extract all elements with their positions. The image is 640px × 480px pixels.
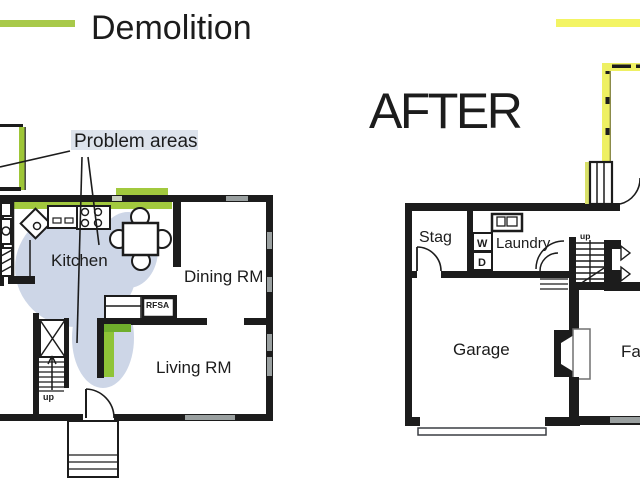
svg-text:Dining RM: Dining RM	[184, 267, 263, 286]
svg-text:Fa: Fa	[621, 342, 640, 361]
svg-text:AFTER: AFTER	[369, 83, 521, 139]
svg-text:D: D	[478, 257, 486, 269]
svg-text:Garage: Garage	[453, 340, 510, 359]
svg-text:RFSA: RFSA	[146, 300, 169, 310]
svg-text:Problem areas: Problem areas	[74, 131, 198, 152]
svg-text:up: up	[43, 392, 54, 402]
svg-text:Demolition: Demolition	[91, 9, 252, 47]
svg-text:Stag: Stag	[419, 229, 452, 246]
svg-text:Laundry: Laundry	[496, 235, 551, 252]
svg-text:Living RM: Living RM	[156, 358, 232, 377]
svg-text:W: W	[477, 238, 488, 250]
svg-text:up: up	[580, 231, 590, 241]
